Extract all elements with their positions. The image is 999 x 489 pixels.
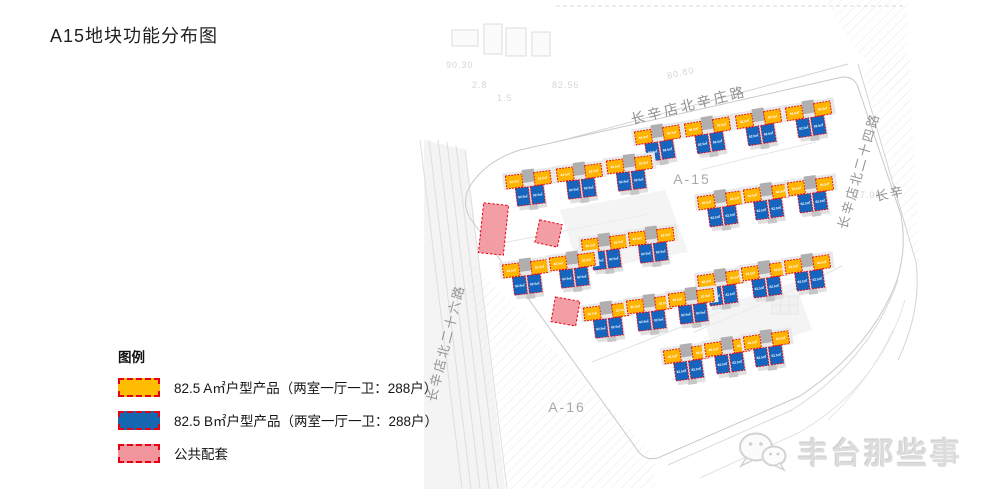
road-label-east: 长辛店北二十四路: [835, 111, 882, 231]
building-cluster: 82.5㎡82.5㎡82.5㎡82.5㎡: [502, 166, 559, 213]
wechat-icon: [736, 429, 788, 473]
type-b-product-swatch: [118, 411, 160, 430]
page: A15地块功能分布图: [0, 0, 999, 489]
building-cluster: 82.5㎡82.5㎡82.5㎡82.5㎡: [782, 96, 840, 145]
legend-item-label: 82.5 B㎡户型产品（两室一厅一卫：288户）: [174, 410, 438, 430]
watermark-text: 丰台那些事: [798, 429, 963, 473]
legend-item-type-b-product: 82.5 B㎡户型产品（两室一厅一卫：288户）: [118, 410, 438, 430]
plot-label-a16: A-16: [548, 399, 586, 415]
public-facility-block: [478, 203, 508, 255]
faint-elevation-label: 80.80: [666, 65, 695, 81]
building-cluster: 82.5㎡82.5㎡82.5㎡82.5㎡: [603, 151, 660, 198]
watermark: 丰台那些事: [736, 429, 963, 473]
legend: 图例 82.5 A㎡户型产品（两室一厅一卫：288户）82.5 B㎡户型产品（两…: [118, 346, 438, 476]
public-facility-block: [535, 220, 562, 247]
legend-item-public-facility: 公共配套: [118, 443, 438, 463]
public-facility-swatch: [118, 444, 160, 463]
public-facility-block: [551, 297, 580, 326]
building-cluster: 82.5㎡82.5㎡82.5㎡82.5㎡: [740, 326, 797, 374]
building-cluster: 82.5㎡82.5㎡82.5㎡82.5㎡: [553, 159, 610, 206]
building-cluster: 82.5㎡82.5㎡82.5㎡82.5㎡: [784, 172, 841, 220]
type-a-product-swatch: [118, 378, 160, 397]
faint-elevation-label: 82.56: [552, 80, 580, 90]
faint-elevation-label: 2.8: [472, 80, 488, 90]
building-cluster: 82.5㎡82.5㎡82.5㎡82.5㎡: [681, 112, 739, 161]
plot-label-a15: A-15: [673, 171, 711, 187]
faint-elevation-label: 1.5: [497, 93, 513, 103]
legend-item-type-a-product: 82.5 A㎡户型产品（两室一厅一卫：288户）: [118, 377, 438, 397]
legend-item-label: 82.5 A㎡户型产品（两室一厅一卫：288户）: [174, 377, 437, 397]
legend-heading: 图例: [118, 346, 438, 366]
legend-items: 82.5 A㎡户型产品（两室一厅一卫：288户）82.5 B㎡户型产品（两室一厅…: [118, 377, 438, 463]
legend-item-label: 公共配套: [174, 443, 228, 463]
faint-elevation-label: 90.30: [446, 60, 474, 70]
building-cluster: 82.5㎡82.5㎡82.5㎡82.5㎡: [546, 248, 603, 295]
building-cluster: 82.5㎡82.5㎡82.5㎡82.5㎡: [732, 104, 790, 153]
